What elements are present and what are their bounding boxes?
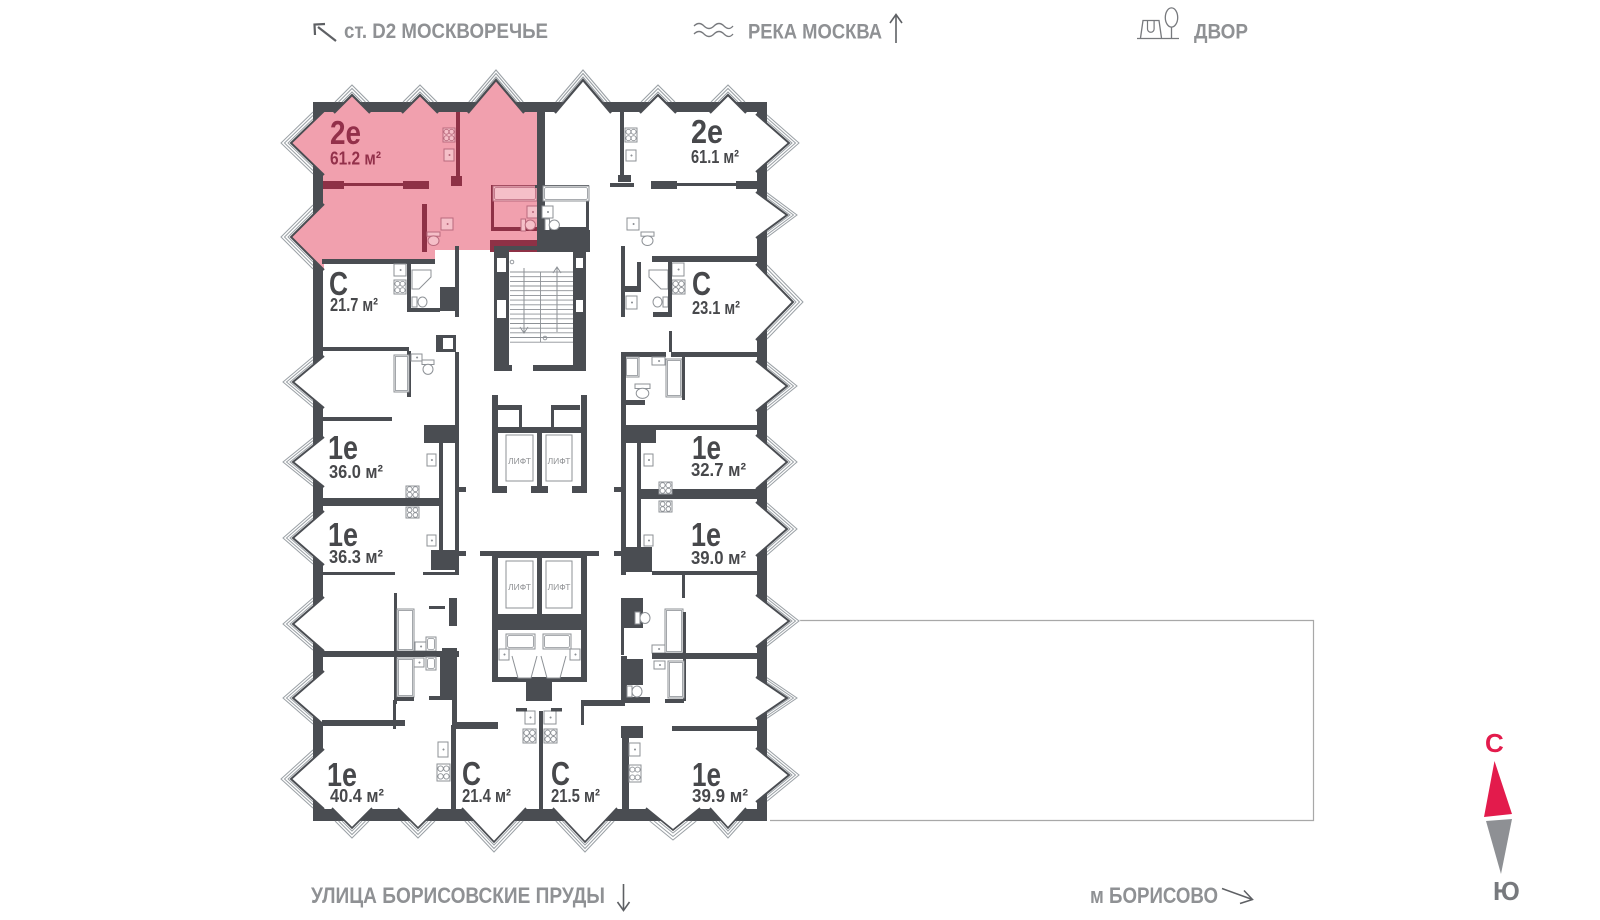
svg-text:23.1 м²: 23.1 м² <box>692 297 740 318</box>
svg-text:40.4 м²: 40.4 м² <box>330 785 384 806</box>
svg-text:32.7 м²: 32.7 м² <box>691 459 746 480</box>
svg-text:39.9 м²: 39.9 м² <box>692 785 748 806</box>
svg-text:36.3 м²: 36.3 м² <box>329 546 383 567</box>
svg-text:С: С <box>1485 728 1504 758</box>
svg-text:ДВОР: ДВОР <box>1194 21 1248 44</box>
svg-text:ЛИФТ: ЛИФТ <box>508 456 531 466</box>
svg-text:ст. D2 МОСКВОРЕЧЬЕ: ст. D2 МОСКВОРЕЧЬЕ <box>344 20 548 43</box>
svg-text:Ю: Ю <box>1493 876 1520 906</box>
svg-text:2е: 2е <box>330 114 361 151</box>
svg-text:61.1 м²: 61.1 м² <box>691 146 739 167</box>
svg-text:ЛИФТ: ЛИФТ <box>548 582 571 592</box>
svg-text:РЕКА МОСКВА: РЕКА МОСКВА <box>748 21 882 44</box>
svg-text:21.5 м²: 21.5 м² <box>551 785 600 806</box>
svg-text:21.7 м²: 21.7 м² <box>330 294 378 315</box>
svg-text:61.2 м²: 61.2 м² <box>330 148 381 169</box>
svg-text:2е: 2е <box>691 113 723 150</box>
svg-text:21.4 м²: 21.4 м² <box>462 785 511 806</box>
svg-text:ЛИФТ: ЛИФТ <box>508 582 531 592</box>
svg-text:м БОРИСОВО: м БОРИСОВО <box>1090 883 1218 908</box>
svg-text:УЛИЦА БОРИСОВСКИЕ ПРУДЫ: УЛИЦА БОРИСОВСКИЕ ПРУДЫ <box>311 883 605 908</box>
svg-text:39.0 м²: 39.0 м² <box>691 547 746 568</box>
svg-text:ЛИФТ: ЛИФТ <box>548 456 571 466</box>
svg-text:36.0 м²: 36.0 м² <box>329 461 383 482</box>
